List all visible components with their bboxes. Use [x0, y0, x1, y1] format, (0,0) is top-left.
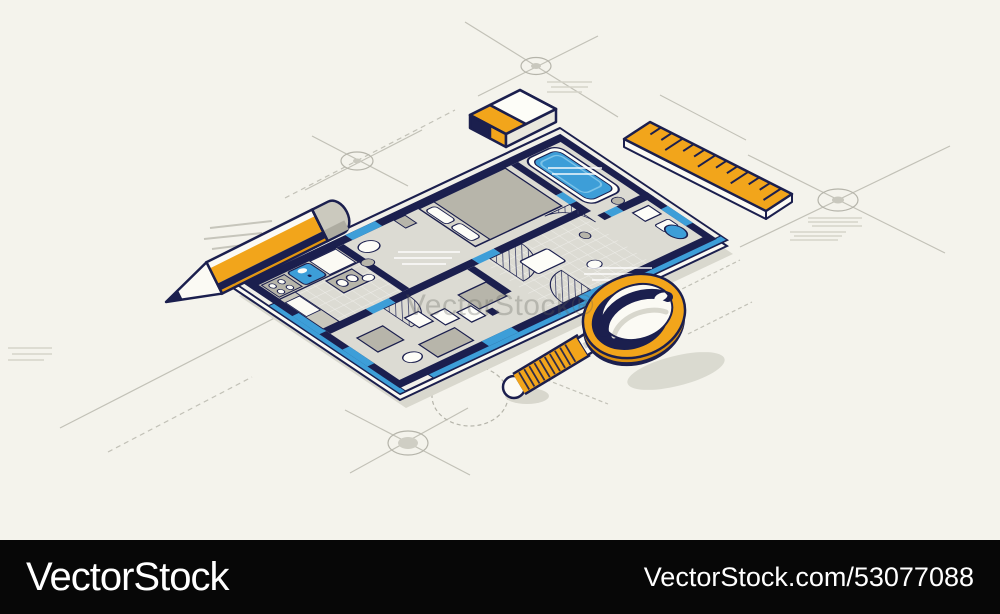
image-credit-url: VectorStock.com/53077088: [644, 562, 974, 593]
footer-bar: VectorStock VectorStock.com/53077088: [0, 540, 1000, 614]
stock-preview-page: VectorStock® VectorStock VectorStock.com…: [0, 0, 1000, 614]
watermark: VectorStock®: [406, 289, 594, 323]
vectorstock-logo: VectorStock: [26, 555, 228, 600]
